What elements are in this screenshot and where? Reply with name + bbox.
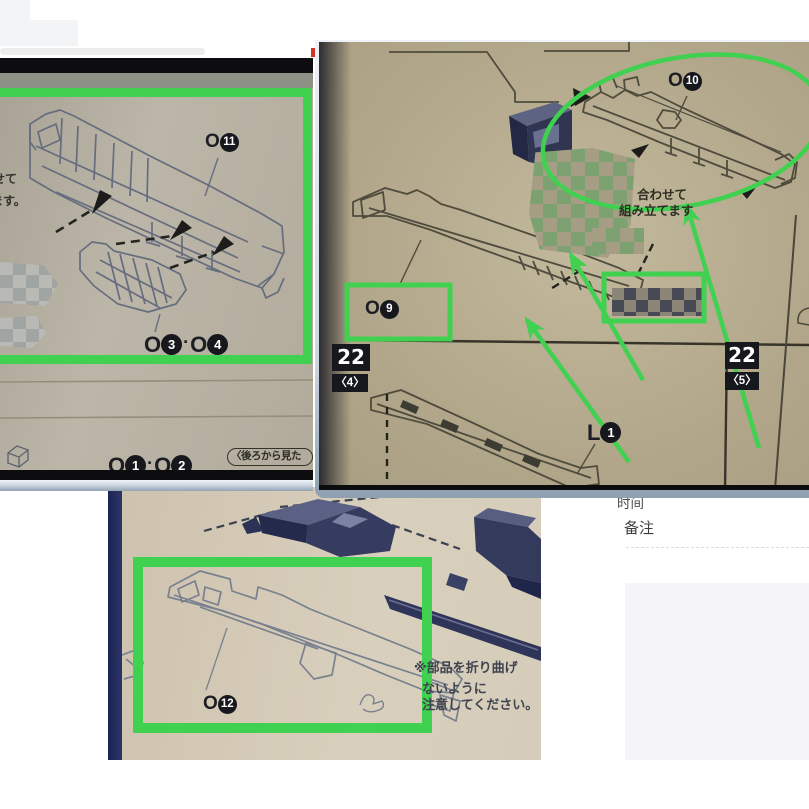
- green-annotations: [319, 42, 809, 490]
- cube-icon: [8, 446, 28, 467]
- step-substep-5: 〈5〉: [725, 372, 759, 390]
- part-label-o9: O9: [365, 298, 399, 320]
- rear-view-label: 〈後ろから見た: [227, 448, 313, 466]
- step-number-22-5: 22: [725, 342, 759, 369]
- green-highlight-box: [133, 557, 432, 733]
- screen: ☺ 发送讯 按 Sh 时间 备注: [0, 0, 809, 809]
- part-label-o12: O12: [203, 693, 237, 715]
- manual-paper: O10 O9 L1 合わせて 組み立てます 22 〈4〉 22 〈5〉: [319, 42, 809, 490]
- photo-frame-edge: [0, 480, 313, 491]
- assemble-note-line2: 組み立てます: [619, 200, 693, 219]
- dashed-divider: [626, 547, 809, 548]
- caution-text-line3: 注意してください。: [422, 694, 538, 713]
- photo-black-bar-bottom: [0, 470, 313, 480]
- content-placeholder-block: [625, 583, 809, 760]
- photo-black-bar-bottom: [319, 485, 809, 490]
- step-substep-4: 〈4〉: [332, 374, 368, 392]
- photo-instruction-right[interactable]: O10 O9 L1 合わせて 組み立てます 22 〈4〉 22 〈5〉: [315, 40, 809, 498]
- green-arrow: [687, 206, 759, 448]
- green-highlight-box: [0, 88, 312, 364]
- green-highlight-box: [604, 274, 704, 321]
- step-number-22-4: 22: [332, 344, 370, 371]
- part-label-o10: O10: [668, 70, 702, 92]
- photo-instruction-left[interactable]: せて ます。 O11 O3·O4 O1·O2 〈後ろから見た: [0, 46, 313, 491]
- part-label-l1: L1: [587, 420, 621, 446]
- photo-instruction-bottom[interactable]: O12 ※部品を折り曲げ ないように 注意してください。: [108, 487, 541, 760]
- remark-label: 备注: [624, 517, 654, 538]
- caution-text-line1: ※部品を折り曲げ: [414, 657, 518, 676]
